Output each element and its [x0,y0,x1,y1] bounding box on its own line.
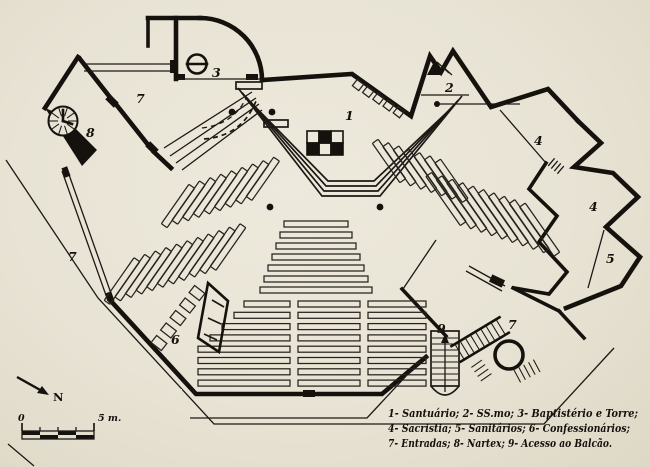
plan-label-entrada: 7 [508,317,517,332]
plan-label-santuario: 1 [345,108,354,123]
plan-label-entrada: 7 [68,249,77,264]
door-jambs [61,60,505,398]
scale-bar: 0 5 m. [18,413,121,439]
legend-line-1: 1- Santuário; 2- SS.mo; 3- Baptistério e… [388,407,638,420]
north-arrow-icon: N [17,377,64,404]
plan-label-sanitarios: 5 [606,251,615,266]
legend-line-3: 7- Entradas; 8- Nartex; 9- Acesso ao Bal… [388,437,612,450]
balcony-stair [451,317,508,361]
legend-line-2: 4- Sacristia; 5- Sanitários; 6- Confessi… [388,422,630,435]
plan-label-entrada: 7 [136,91,145,106]
north-label: N [53,390,64,404]
plan-label-nartex: 8 [86,125,95,140]
pews [104,139,559,386]
confessionals [151,283,228,352]
plan-label-confessionarios: 6 [171,332,180,347]
plan-label-baptisterio-e-torre: 3 [212,65,221,80]
plan-number-labels: 378124457697 [68,65,615,347]
plan-label-sacristia: 4 [589,199,598,214]
turret-icon [495,341,523,369]
stair-complex [431,317,540,395]
corridor-lines [84,64,174,71]
scale-end-label: 5 m. [98,413,121,424]
sanctuary [236,79,462,210]
legend: 1- Santuário; 2- SS.mo; 3- Baptistério e… [388,407,638,450]
scale-start-label: 0 [18,413,25,424]
altar-icon [307,131,343,155]
floor-plan-scan: 378124457697 N 0 5 m. 1- Santuário; 2- S… [0,0,650,467]
plan-label-ss-mo: 2 [444,80,454,95]
plan-label-acesso-ao-balcao: 9 [437,321,446,336]
sedilia-seats [352,79,404,117]
plan-label-sacristia: 4 [534,133,543,148]
spiral-stair-icon [49,107,78,136]
sacristy-door-hatch [548,158,564,173]
floor-plan-drawing: 378124457697 N 0 5 m. 1- Santuário; 2- S… [0,0,650,467]
